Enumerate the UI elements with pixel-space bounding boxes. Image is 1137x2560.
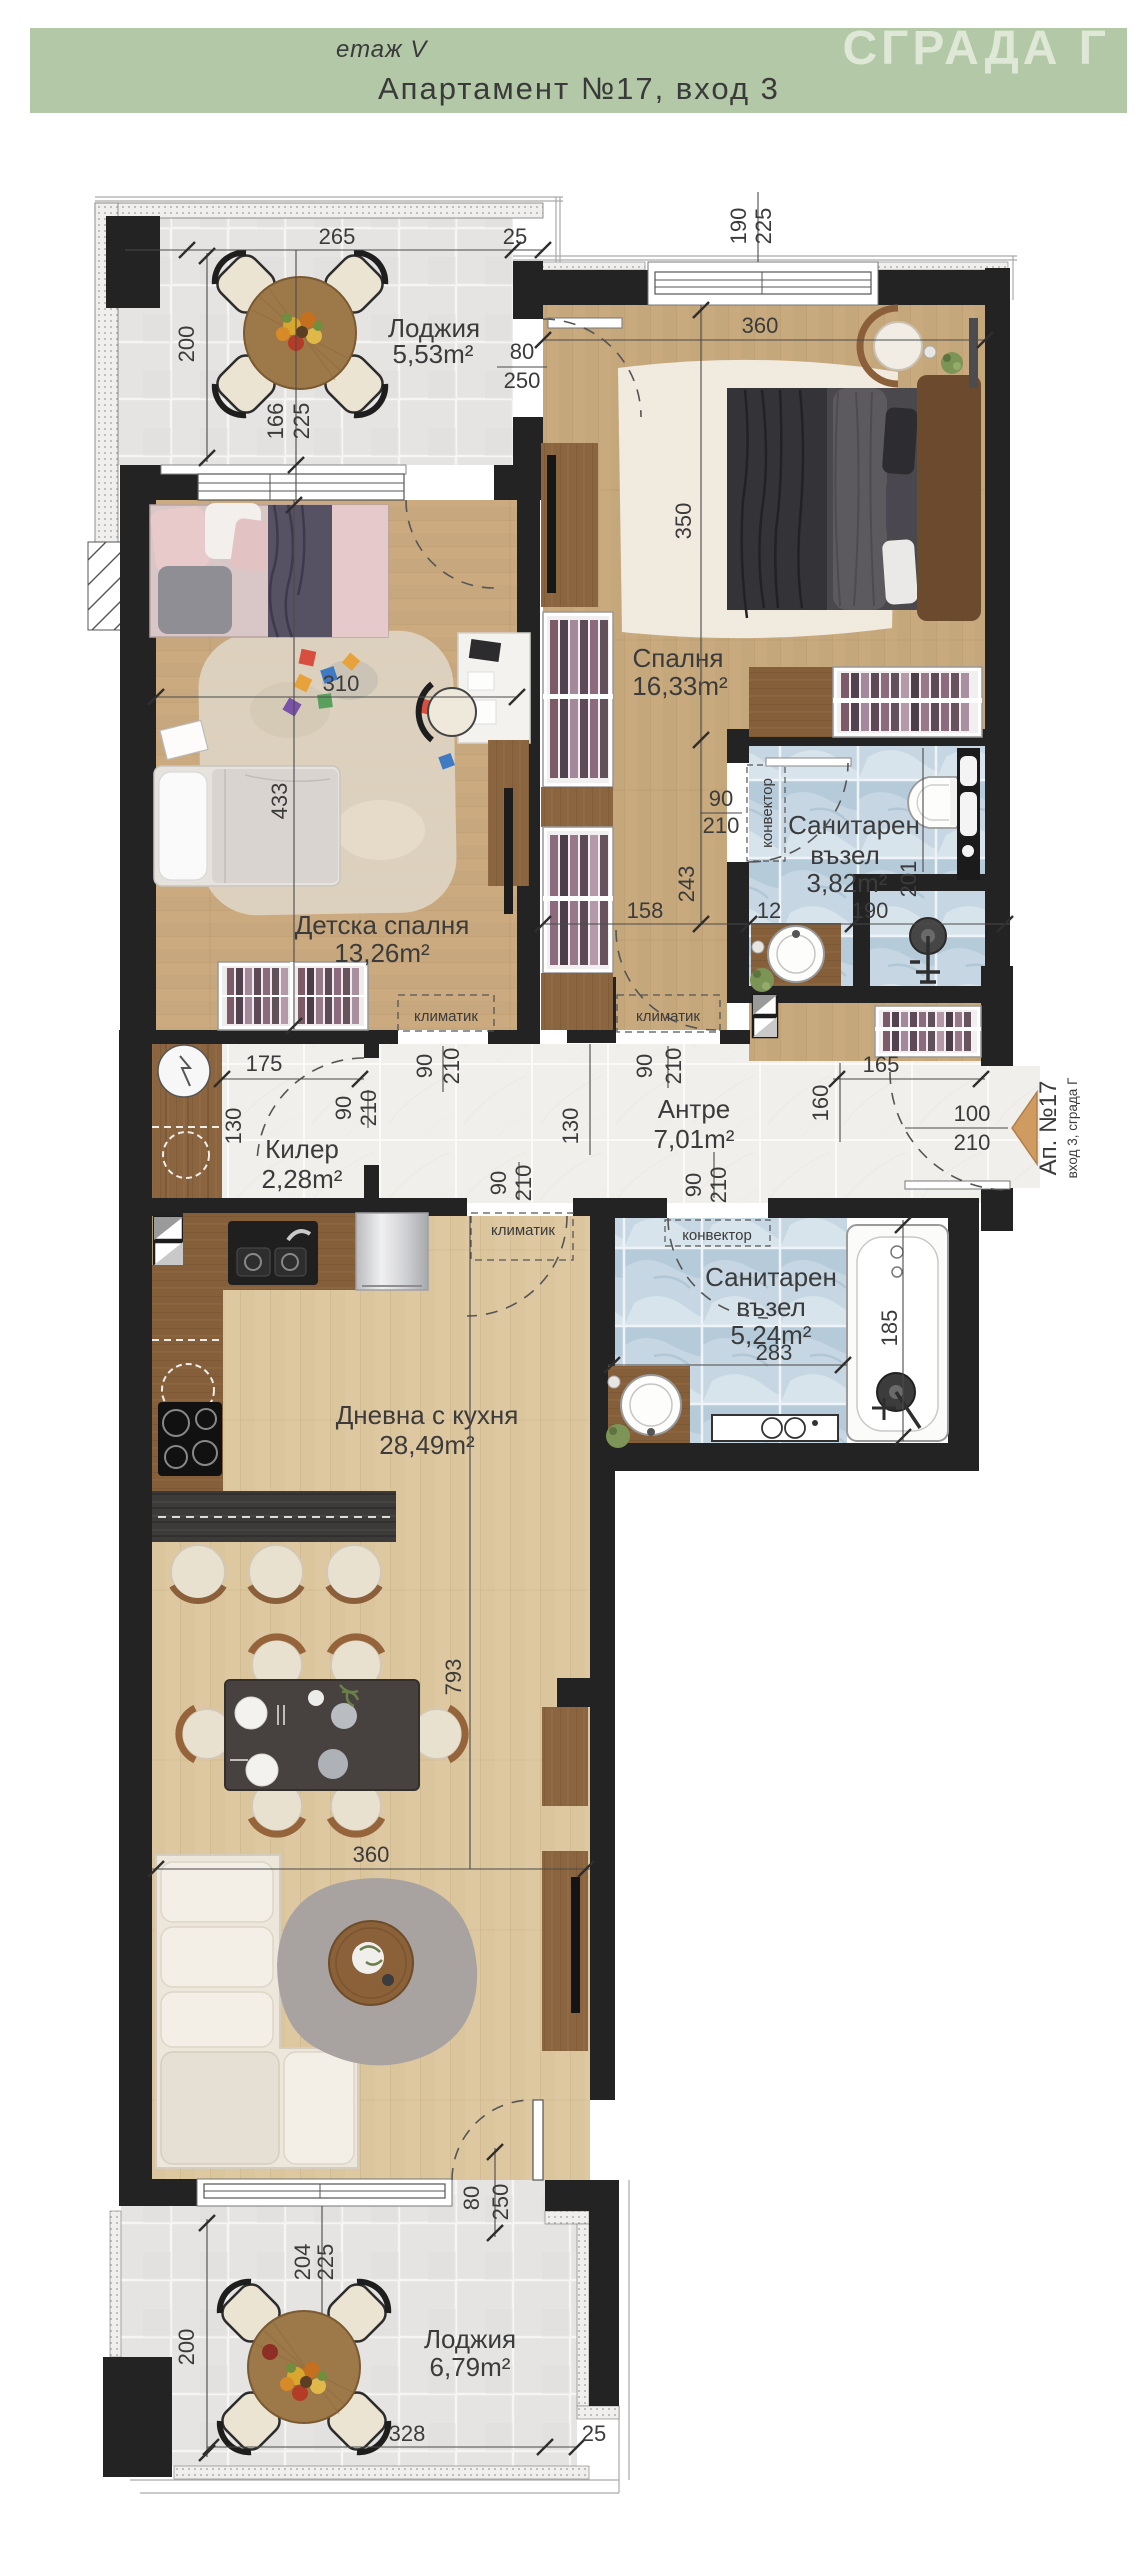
svg-text:80: 80 <box>510 339 534 364</box>
svg-text:350: 350 <box>671 503 696 540</box>
svg-text:Апартамент №17, вход 3: Апартамент №17, вход 3 <box>378 71 780 106</box>
svg-text:16,33m²: 16,33m² <box>632 671 728 701</box>
svg-text:13,26m²: 13,26m² <box>334 938 430 968</box>
svg-text:възел: възел <box>810 840 880 870</box>
svg-text:90: 90 <box>486 1171 511 1195</box>
svg-text:възел: възел <box>736 1292 806 1322</box>
svg-text:Санитарен: Санитарен <box>705 1262 837 1292</box>
svg-text:12: 12 <box>757 898 781 923</box>
svg-text:210: 210 <box>954 1130 991 1155</box>
svg-text:200: 200 <box>174 326 199 363</box>
svg-text:3,82m²: 3,82m² <box>807 868 888 898</box>
svg-text:360: 360 <box>742 313 779 338</box>
svg-text:793: 793 <box>441 1659 466 1696</box>
svg-text:243: 243 <box>674 866 699 903</box>
svg-text:климатик: климатик <box>491 1222 555 1239</box>
svg-text:250: 250 <box>504 368 541 393</box>
svg-text:210: 210 <box>661 1048 686 1085</box>
svg-text:225: 225 <box>289 403 314 440</box>
svg-text:Антре: Антре <box>658 1094 731 1124</box>
svg-text:158: 158 <box>627 898 664 923</box>
svg-text:130: 130 <box>221 1108 246 1145</box>
svg-text:25: 25 <box>503 224 527 249</box>
svg-text:90: 90 <box>709 786 733 811</box>
svg-text:100: 100 <box>954 1101 991 1126</box>
svg-text:климатик: климатик <box>414 1008 478 1025</box>
svg-text:етаж V: етаж V <box>336 36 428 63</box>
svg-text:80: 80 <box>459 2186 484 2210</box>
svg-text:90: 90 <box>632 1054 657 1078</box>
svg-text:Килер: Килер <box>265 1134 339 1164</box>
svg-text:90: 90 <box>331 1096 356 1120</box>
svg-text:климатик: климатик <box>636 1008 700 1025</box>
svg-text:Санитарен: Санитарен <box>788 810 920 840</box>
svg-text:2,28m²: 2,28m² <box>262 1164 343 1194</box>
svg-text:6,79m²: 6,79m² <box>430 2352 511 2382</box>
svg-text:90: 90 <box>681 1173 706 1197</box>
svg-text:5,53m²: 5,53m² <box>393 339 474 369</box>
svg-text:7,01m²: 7,01m² <box>654 1124 735 1154</box>
svg-text:200: 200 <box>174 2329 199 2366</box>
svg-text:225: 225 <box>751 208 776 245</box>
svg-text:130: 130 <box>558 1108 583 1145</box>
svg-text:210: 210 <box>511 1165 536 1202</box>
svg-text:вход 3, сграда Г: вход 3, сграда Г <box>1065 1077 1080 1178</box>
svg-text:201: 201 <box>896 861 921 898</box>
svg-text:210: 210 <box>439 1048 464 1085</box>
svg-text:конвектор: конвектор <box>759 778 776 848</box>
svg-text:210: 210 <box>356 1090 381 1127</box>
svg-text:185: 185 <box>877 1310 902 1347</box>
svg-text:Спалня: Спалня <box>633 643 724 673</box>
svg-text:265: 265 <box>319 224 356 249</box>
svg-text:328: 328 <box>389 2421 426 2446</box>
svg-text:166: 166 <box>263 403 288 440</box>
svg-text:310: 310 <box>323 671 360 696</box>
svg-text:90: 90 <box>412 1054 437 1078</box>
svg-text:Детска спалня: Детска спалня <box>295 910 470 940</box>
svg-text:175: 175 <box>246 1051 283 1076</box>
svg-text:Ап. №17: Ап. №17 <box>1035 1081 1062 1176</box>
svg-text:Дневна с кухня: Дневна с кухня <box>336 1400 519 1430</box>
svg-text:283: 283 <box>756 1340 793 1365</box>
svg-text:433: 433 <box>267 783 292 820</box>
svg-text:204: 204 <box>290 2244 315 2281</box>
svg-text:конвектор: конвектор <box>682 1227 752 1244</box>
svg-text:250: 250 <box>488 2184 513 2221</box>
svg-text:СГРАДА Г: СГРАДА Г <box>842 22 1110 75</box>
svg-text:28,49m²: 28,49m² <box>379 1430 475 1460</box>
svg-text:225: 225 <box>313 2244 338 2281</box>
svg-text:160: 160 <box>808 1085 833 1122</box>
svg-text:360: 360 <box>353 1842 390 1867</box>
svg-text:210: 210 <box>706 1167 731 1204</box>
svg-text:190: 190 <box>726 208 751 245</box>
svg-text:190: 190 <box>852 898 889 923</box>
svg-text:210: 210 <box>703 813 740 838</box>
svg-text:25: 25 <box>582 2421 606 2446</box>
svg-text:Лоджия: Лоджия <box>424 2324 516 2354</box>
svg-text:165: 165 <box>863 1052 900 1077</box>
